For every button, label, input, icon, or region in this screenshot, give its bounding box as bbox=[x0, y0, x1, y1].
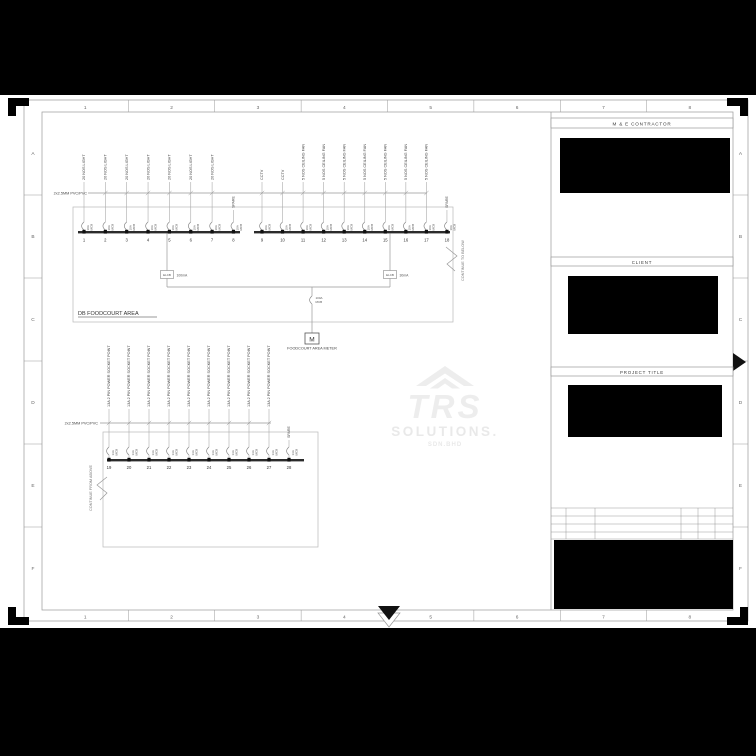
breaker-symbol bbox=[247, 447, 249, 455]
busbar-node bbox=[187, 458, 190, 462]
circuit-load-label: 13A 2 PIN POWER SOCKET POINT bbox=[247, 345, 251, 407]
circuit-number: 4 bbox=[147, 238, 150, 243]
spare-label: SPARE bbox=[232, 195, 236, 208]
schematic-drawing: 1122334455667788AABBCCDDEEFFTRSSOLUTIONS… bbox=[0, 95, 756, 628]
busbar-node bbox=[82, 230, 85, 234]
elcb-label: ELCB bbox=[163, 273, 171, 277]
breaker-symbol bbox=[167, 447, 169, 455]
circuit-number: 20 bbox=[127, 465, 132, 470]
breaker-symbol bbox=[424, 222, 426, 230]
breaker-symbol bbox=[231, 222, 233, 230]
breaker-symbol bbox=[188, 222, 190, 230]
circuit-load-label: 20 NOS LIGHT bbox=[210, 154, 214, 180]
circuit-number: 14 bbox=[362, 238, 367, 243]
circuit-load-label: 13A 2 PIN POWER SOCKET POINT bbox=[227, 345, 231, 407]
breaker-symbol bbox=[301, 222, 303, 230]
busbar-node bbox=[425, 230, 428, 234]
grid-row-label: A bbox=[31, 151, 35, 157]
breaker-symbol bbox=[227, 447, 229, 455]
circuit-number: 21 bbox=[147, 465, 152, 470]
circuit-load-label: 13A 2 PIN POWER SOCKET POINT bbox=[147, 345, 151, 407]
busbar-node bbox=[168, 230, 171, 234]
circuit-number: 27 bbox=[267, 465, 272, 470]
breaker-symbol bbox=[267, 447, 269, 455]
breaker-label: MCB bbox=[111, 224, 115, 231]
grid-row-label: F bbox=[739, 566, 742, 572]
breaker-label: MCB bbox=[294, 449, 298, 456]
grid-column-label: 7 bbox=[602, 615, 605, 621]
circuit-load-label: CCTV bbox=[260, 169, 264, 180]
breaker-label: MCB bbox=[274, 449, 278, 456]
circuit-load-label: 20 NOS LIGHT bbox=[104, 154, 108, 180]
breaker-label: MCB bbox=[239, 224, 243, 231]
breaker-label: MCB bbox=[288, 224, 292, 231]
meter-symbol: M bbox=[309, 337, 314, 344]
circuit-number: 8 bbox=[232, 238, 235, 243]
busbar-node bbox=[384, 230, 387, 234]
circuit-load-label: 5 NOS CEILING FAN bbox=[384, 144, 388, 180]
breaker-label: MCB bbox=[132, 224, 136, 231]
continue-break-symbol bbox=[446, 247, 457, 271]
circuit-number: 24 bbox=[207, 465, 212, 470]
breaker-label: MCB bbox=[254, 449, 258, 456]
cable-label: 2x2.5MM PVC/PVC bbox=[65, 421, 99, 425]
busbar-node bbox=[146, 230, 149, 234]
breaker-label: MCB bbox=[114, 449, 118, 456]
busbar-node bbox=[322, 230, 325, 234]
busbar-node bbox=[207, 458, 210, 462]
circuit-load-label: 20 NOS LIGHT bbox=[146, 154, 150, 180]
continue-note: CONTINUE FROM ABOVE bbox=[89, 465, 93, 511]
busbar-node bbox=[267, 458, 270, 462]
circuit-number: 17 bbox=[424, 238, 429, 243]
breaker-symbol bbox=[146, 222, 148, 230]
breaker-symbol bbox=[321, 222, 323, 230]
busbar-node bbox=[107, 458, 110, 462]
grid-row-label: C bbox=[31, 317, 35, 323]
grid-column-label: 8 bbox=[688, 615, 691, 621]
corner-mark bbox=[740, 98, 748, 116]
circuit-number: 25 bbox=[227, 465, 232, 470]
grid-column-label: 6 bbox=[516, 615, 519, 621]
breaker-label: MCB bbox=[196, 224, 200, 231]
db-enclosure-top bbox=[73, 207, 453, 322]
circuit-load-label: 13A 2 PIN POWER SOCKET POINT bbox=[187, 345, 191, 407]
breaker-symbol bbox=[147, 447, 149, 455]
circuit-number: 10 bbox=[280, 238, 285, 243]
grid-column-label: 5 bbox=[429, 105, 432, 111]
grid-column-label: 1 bbox=[84, 105, 87, 111]
corner-mark bbox=[740, 607, 748, 625]
corner-mark bbox=[8, 617, 29, 625]
breaker-symbol bbox=[280, 222, 282, 230]
continue-break-symbol bbox=[97, 477, 107, 500]
circuit-load-label: 13A 2 PIN POWER SOCKET POINT bbox=[107, 345, 111, 407]
breaker-label: MCB bbox=[194, 449, 198, 456]
breaker-label: MCB bbox=[308, 224, 312, 231]
breaker-symbol bbox=[103, 222, 105, 230]
circuit-load-label: 13A 2 PIN POWER SOCKET POINT bbox=[267, 345, 271, 407]
circuit-load-label: 5 NOS CEILING FAN bbox=[425, 144, 429, 180]
breaker-label: MCB bbox=[432, 224, 436, 231]
circuit-number: 7 bbox=[211, 238, 214, 243]
busbar-node bbox=[445, 230, 448, 234]
breaker-label: MCB bbox=[452, 224, 456, 231]
breaker-symbol bbox=[82, 222, 84, 230]
busbar-node bbox=[104, 230, 107, 234]
circuit-load-label: CCTV bbox=[281, 169, 285, 180]
client-header: CLIENT bbox=[632, 260, 652, 265]
breaker-symbol bbox=[167, 222, 169, 230]
breaker-symbol bbox=[207, 447, 209, 455]
main-switch-symbol bbox=[310, 296, 312, 304]
grid-column-label: 6 bbox=[516, 105, 519, 111]
circuit-load-label: 13A 2 PIN POWER SOCKET POINT bbox=[207, 345, 211, 407]
breaker-label: MCB bbox=[370, 224, 374, 231]
grid-column-label: 8 bbox=[688, 105, 691, 111]
breaker-symbol bbox=[127, 447, 129, 455]
circuit-number: 9 bbox=[261, 238, 264, 243]
elcb-rating: 100mA bbox=[177, 273, 188, 277]
drawing-sheet: 1122334455667788AABBCCDDEEFFTRSSOLUTIONS… bbox=[0, 95, 756, 628]
breaker-symbol bbox=[362, 222, 364, 230]
circuit-number: 2 bbox=[104, 238, 107, 243]
main-switch-label: MCB bbox=[316, 300, 323, 304]
circuit-number: 26 bbox=[247, 465, 252, 470]
breaker-label: MCB bbox=[350, 224, 354, 231]
busbar-node bbox=[211, 230, 214, 234]
meter-label: FOODCOURT AREA METER bbox=[287, 347, 337, 351]
spare-label: SPARE bbox=[287, 425, 291, 438]
breaker-label: MCB bbox=[174, 449, 178, 456]
breaker-symbol bbox=[383, 222, 385, 230]
grid-column-label: 2 bbox=[170, 105, 173, 111]
circuit-number: 19 bbox=[107, 465, 112, 470]
busbar-node bbox=[125, 230, 128, 234]
circuit-load-label: 5 NOS CEILING FAN bbox=[301, 144, 305, 180]
grid-row-label: B bbox=[31, 234, 34, 240]
elcb-label: ELCB bbox=[386, 273, 394, 277]
breaker-label: MCB bbox=[391, 224, 395, 231]
circuit-load-label: 5 NOS CEILING FAN bbox=[404, 144, 408, 180]
busbar-node bbox=[404, 230, 407, 234]
breaker-label: MCB bbox=[134, 449, 138, 456]
circuit-load-label: 20 NOS LIGHT bbox=[189, 154, 193, 180]
busbar-node bbox=[127, 458, 130, 462]
circuit-load-label: 20 NOS LIGHT bbox=[168, 154, 172, 180]
db-name-label: DB FOODCOURT AREA bbox=[78, 311, 139, 317]
breaker-symbol bbox=[403, 222, 405, 230]
breaker-symbol bbox=[342, 222, 344, 230]
circuit-load-label: 20 NOS LIGHT bbox=[82, 154, 86, 180]
busbar-node bbox=[363, 230, 366, 234]
circuit-number: 1 bbox=[83, 238, 86, 243]
circuit-number: 3 bbox=[126, 238, 129, 243]
busbar-node bbox=[247, 458, 250, 462]
watermark-brand: TRS bbox=[408, 388, 483, 425]
grid-column-label: 2 bbox=[170, 615, 173, 621]
circuit-load-label: 13A 2 PIN POWER SOCKET POINT bbox=[127, 345, 131, 407]
grid-row-label: D bbox=[31, 400, 35, 406]
circuit-load-label: 5 NOS CEILING FAN bbox=[342, 144, 346, 180]
circuit-number: 6 bbox=[190, 238, 193, 243]
busbar-node bbox=[232, 230, 235, 234]
grid-column-label: 4 bbox=[343, 615, 346, 621]
grid-column-label: 1 bbox=[84, 615, 87, 621]
breaker-symbol bbox=[124, 222, 126, 230]
grid-column-label: 3 bbox=[257, 615, 260, 621]
grid-row-label: D bbox=[739, 400, 743, 406]
viewer-background: 1122334455667788AABBCCDDEEFFTRSSOLUTIONS… bbox=[0, 0, 756, 756]
contractor-header: M & E CONTRACTOR bbox=[613, 122, 672, 127]
circuit-number: 18 bbox=[445, 238, 450, 243]
busbar-node bbox=[302, 230, 305, 234]
breaker-label: MCB bbox=[153, 224, 157, 231]
circuit-number: 23 bbox=[187, 465, 192, 470]
grid-column-label: 3 bbox=[257, 105, 260, 111]
breaker-symbol bbox=[107, 447, 109, 455]
continue-note: CONTINUE TO BELOW bbox=[461, 240, 465, 281]
breaker-symbol bbox=[287, 447, 289, 455]
busbar-node bbox=[287, 458, 290, 462]
breaker-label: MCB bbox=[217, 224, 221, 231]
redacted-contractor-block bbox=[560, 138, 730, 193]
watermark-suffix: SDN.BHD bbox=[428, 442, 462, 448]
breaker-label: MCB bbox=[175, 224, 179, 231]
grid-row-label: B bbox=[739, 234, 742, 240]
circuit-number: 11 bbox=[301, 238, 306, 243]
circuit-number: 12 bbox=[321, 238, 326, 243]
circuit-number: 13 bbox=[342, 238, 347, 243]
circuit-load-label: 5 NOS CEILING FAN bbox=[363, 144, 367, 180]
breaker-label: MCB bbox=[89, 224, 93, 231]
elcb-rating: 30mA bbox=[400, 273, 410, 277]
grid-row-label: C bbox=[739, 317, 743, 323]
grid-row-label: F bbox=[32, 566, 35, 572]
grid-column-label: 7 bbox=[602, 105, 605, 111]
circuit-number: 5 bbox=[168, 238, 171, 243]
watermark-word: SOLUTIONS. bbox=[391, 424, 499, 439]
circuit-number: 15 bbox=[383, 238, 388, 243]
circuit-number: 22 bbox=[167, 465, 172, 470]
breaker-symbol bbox=[187, 447, 189, 455]
circuit-number: 16 bbox=[404, 238, 409, 243]
circuit-load-label: 20 NOS LIGHT bbox=[125, 154, 129, 180]
busbar-node bbox=[227, 458, 230, 462]
breaker-label: MCB bbox=[214, 449, 218, 456]
breaker-label: MCB bbox=[411, 224, 415, 231]
grid-row-label: E bbox=[31, 483, 34, 489]
breaker-label: MCB bbox=[329, 224, 333, 231]
project-header: PROJECT TITLE bbox=[620, 370, 664, 375]
busbar-node bbox=[343, 230, 346, 234]
grid-row-label: A bbox=[739, 151, 743, 157]
redacted-client-block bbox=[568, 276, 718, 334]
breaker-symbol bbox=[260, 222, 262, 230]
circuit-number: 28 bbox=[287, 465, 292, 470]
breaker-label: MCB bbox=[154, 449, 158, 456]
cable-label: 2x2.5MM PVC/PVC bbox=[54, 191, 88, 195]
breaker-symbol bbox=[445, 222, 447, 230]
breaker-symbol bbox=[210, 222, 212, 230]
redacted-project-block bbox=[568, 385, 722, 437]
circuit-load-label: 5 NOS CEILING FAN bbox=[322, 144, 326, 180]
corner-mark bbox=[8, 98, 16, 116]
busbar-node bbox=[260, 230, 263, 234]
busbar bbox=[107, 459, 304, 461]
busbar-node bbox=[189, 230, 192, 234]
redacted-footer-block bbox=[554, 540, 733, 609]
breaker-label: MCB bbox=[234, 449, 238, 456]
grid-column-label: 5 bbox=[429, 615, 432, 621]
busbar-node bbox=[147, 458, 150, 462]
grid-column-label: 4 bbox=[343, 105, 346, 111]
spare-label: SPARE bbox=[445, 195, 449, 208]
busbar-node bbox=[281, 230, 284, 234]
breaker-label: MCB bbox=[267, 224, 271, 231]
center-mark-right bbox=[733, 353, 746, 371]
circuit-load-label: 13A 2 PIN POWER SOCKET POINT bbox=[167, 345, 171, 407]
grid-row-label: E bbox=[739, 483, 742, 489]
busbar-node bbox=[167, 458, 170, 462]
